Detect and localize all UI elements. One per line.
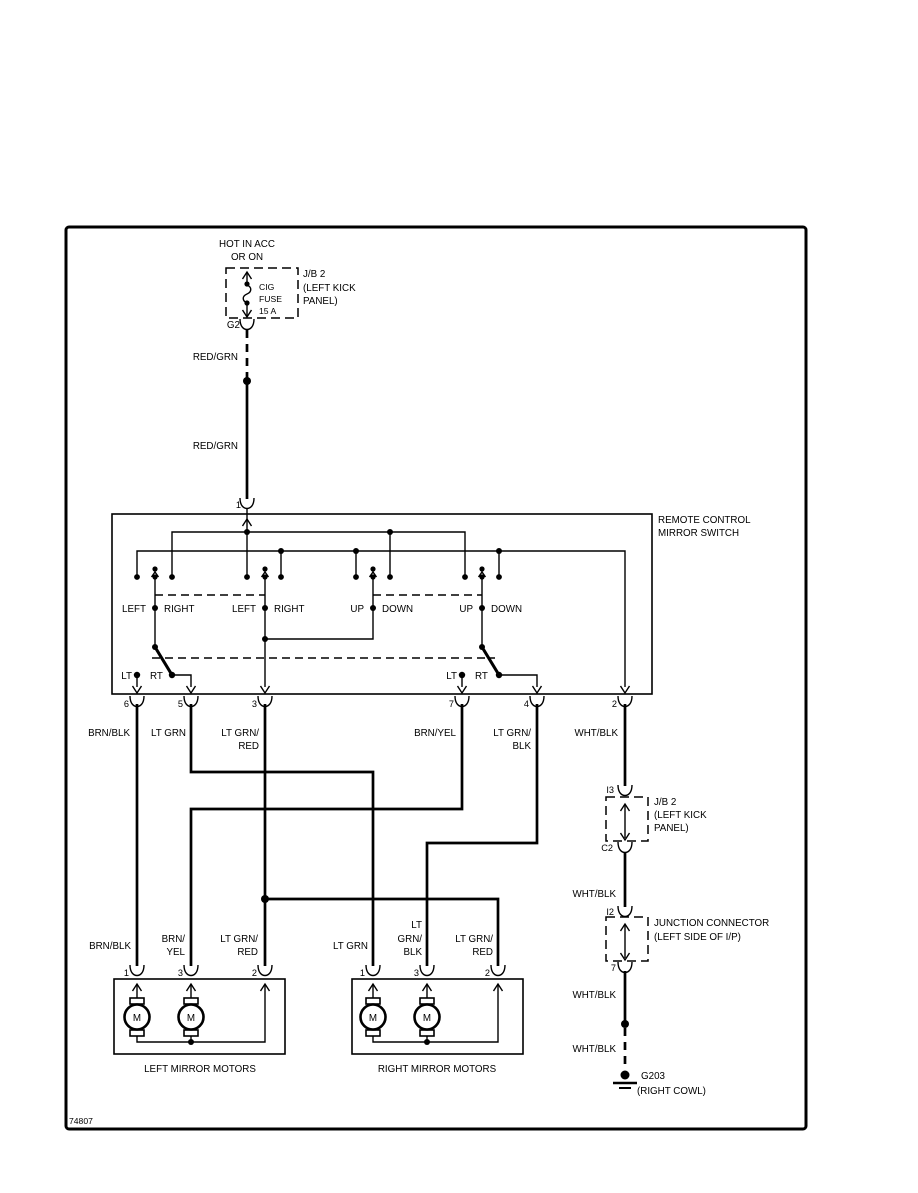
wiring-diagram-canvas: 74807 HOT IN ACC OR ON CIG FUSE 15 A J/B… (0, 0, 918, 1188)
pole-wiper (152, 566, 486, 579)
connector-icon (184, 965, 198, 976)
connector-pin1-icon (240, 498, 254, 509)
fuse-name-line2: FUSE (259, 294, 282, 304)
arrow-down-icon (621, 686, 630, 693)
junction-pin7-number: 7 (611, 963, 616, 973)
wire-color-label: BRN/YEL (414, 728, 456, 739)
arrow-down-icon (261, 686, 270, 693)
junction-dot (188, 1039, 194, 1045)
hot-label-line2: OR ON (231, 252, 263, 263)
pole-dot (370, 605, 376, 611)
section2-right-label: RIGHT (274, 604, 304, 615)
wiring-diagram-page: 74807 HOT IN ACC OR ON CIG FUSE 15 A J/B… (0, 0, 918, 1188)
connector-icon (491, 965, 505, 976)
connector-icon (130, 965, 144, 976)
pole-dot (479, 605, 485, 611)
ground-name: G203 (641, 1071, 666, 1082)
motor-cap (184, 1030, 198, 1036)
jb2-label-line2: (LEFT KICK (654, 810, 707, 821)
motor-letter: M (187, 1013, 195, 1024)
motor-pin2-number: 2 (252, 968, 257, 978)
connector-c2-icon (618, 842, 632, 853)
pin6-number: 6 (124, 699, 129, 709)
switch-pin1-number: 1 (236, 500, 241, 510)
motor-letter: M (133, 1013, 141, 1024)
pin5-number: 5 (178, 699, 183, 709)
section4-down-label: DOWN (491, 604, 522, 615)
motor-letter: M (423, 1013, 431, 1024)
motor-cap (366, 998, 380, 1004)
ground-symbol-icon (613, 1071, 637, 1089)
connector-i3-icon (618, 785, 632, 796)
motor-cap (184, 998, 198, 1004)
arrow-down-icon (533, 686, 542, 693)
bus-junction (244, 529, 250, 535)
wire-color-label: WHT/BLK (572, 990, 616, 1001)
rt-label: RT (475, 671, 488, 682)
diagram-border (66, 227, 806, 1129)
contact-dot (134, 574, 140, 580)
wire-color-label: LT GRN/ (455, 934, 493, 945)
contact-dot (387, 574, 393, 580)
ground-path: I3 J/B 2 (LEFT KICK PANEL) C2 WHT/BLK I2… (572, 785, 769, 1097)
section2-left-label: LEFT (232, 604, 256, 615)
connector-i2-icon (618, 906, 632, 917)
pole-dot (152, 605, 158, 611)
contact-dot (462, 574, 468, 580)
hot-label-line1: HOT IN ACC (219, 239, 275, 250)
switch-lever-left: LT RT (121, 644, 191, 687)
power-feed: HOT IN ACC OR ON CIG FUSE 15 A J/B 2 (LE… (193, 239, 356, 510)
link-junction-dot (262, 636, 268, 642)
motor-cap (130, 998, 144, 1004)
right-mirror-motors: 1 3 2 M M RIGHT MIRROR MOTORS (352, 965, 523, 1075)
bus-junction (353, 548, 359, 554)
lt-label: LT (446, 671, 457, 682)
wire-color-red-grn-lower: RED/GRN (193, 441, 238, 452)
arrow-down-icon (458, 686, 467, 693)
wire-color-label: YEL (166, 947, 185, 958)
connector-g2-label: G2 (227, 320, 240, 331)
motor-letter: M (369, 1013, 377, 1024)
wire-color-label: RED (237, 947, 258, 958)
switch-title-line1: REMOTE CONTROL (658, 515, 751, 526)
harness-wires: BRN/BLK LT GRN LT GRN/ RED BRN/YEL LT GR… (88, 704, 625, 966)
pole-dot (262, 605, 268, 611)
connector-i3-label: I3 (606, 785, 614, 795)
fuse-name-line1: CIG (259, 282, 275, 292)
lt-label: LT (121, 671, 132, 682)
connector-icon (420, 965, 434, 976)
section3-up-label: UP (350, 604, 364, 615)
wire-color-label: BRN/BLK (88, 728, 130, 739)
junction-connector-label-line2: (LEFT SIDE OF I/P) (654, 932, 741, 943)
jb2-label-line2: (LEFT KICK (303, 283, 356, 294)
switch-title-line2: MIRROR SWITCH (658, 528, 739, 539)
wire-color-label: LT GRN/ (220, 934, 258, 945)
junction-connector-box (606, 917, 648, 961)
contact-dot (244, 574, 250, 580)
fuse-element-icon (243, 285, 251, 303)
contact-dot (496, 574, 502, 580)
connector-c2-label: C2 (601, 843, 613, 853)
motor-cap (130, 1030, 144, 1036)
connector-pin7-icon (618, 962, 632, 973)
wire-color-label: BRN/ (162, 934, 186, 945)
jb2-label-line3: PANEL) (303, 296, 338, 307)
splice-dot (621, 1020, 629, 1028)
motor-pin1-number: 1 (360, 968, 365, 978)
fuse-rating: 15 A (259, 306, 276, 316)
motor-common-lead (137, 984, 265, 1042)
wire-lt-grn-red-branch (265, 899, 498, 966)
left-motor-caption: LEFT MIRROR MOTORS (144, 1064, 256, 1075)
motor-pin1-number: 1 (124, 968, 129, 978)
arrow-down-icon (187, 686, 196, 693)
connector-icon (366, 965, 380, 976)
wire-color-red-grn-upper: RED/GRN (193, 352, 238, 363)
motor-cap (420, 998, 434, 1004)
bus-lower (137, 551, 625, 687)
wire-color-label: RED (472, 947, 493, 958)
junction-dot (424, 1039, 430, 1045)
motor-pin3-number: 3 (414, 968, 419, 978)
jb2-label-line1: J/B 2 (654, 797, 676, 808)
pin3-number: 3 (252, 699, 257, 709)
jb2-box (606, 797, 648, 841)
wire-color-label: RED (238, 741, 259, 752)
motor-cap (420, 1030, 434, 1036)
bus-junction (387, 529, 393, 535)
contact-dot (278, 574, 284, 580)
pin7-number: 7 (449, 699, 454, 709)
wire-color-label: BLK (403, 947, 422, 958)
wire-color-label: WHT/BLK (572, 1044, 616, 1055)
arrow-down-icon (133, 686, 142, 693)
connector-g2-icon (240, 319, 254, 330)
bus-junction (278, 548, 284, 554)
contact-dot (169, 574, 175, 580)
rt-label: RT (150, 671, 163, 682)
wire-color-label: LT (411, 920, 422, 931)
motor-cap (366, 1030, 380, 1036)
jb2-label-line1: J/B 2 (303, 269, 325, 280)
section1-right-label: RIGHT (164, 604, 194, 615)
form-number: 74807 (69, 1116, 93, 1126)
motor-pin2-number: 2 (485, 968, 490, 978)
contact-dot (353, 574, 359, 580)
wire-color-label: BLK (512, 741, 531, 752)
section4-up-label: UP (459, 604, 473, 615)
mirror-switch: REMOTE CONTROL MIRROR SWITCH (112, 508, 751, 709)
junction-connector-label-line1: JUNCTION CONNECTOR (654, 918, 769, 929)
left-mirror-motors: 1 3 2 M M LEFT MIRROR MOTORS (114, 965, 285, 1075)
section3-down-label: DOWN (382, 604, 413, 615)
connector-icon (258, 965, 272, 976)
wire-color-label: WHT/BLK (574, 728, 618, 739)
connector-i2-label: I2 (606, 907, 614, 917)
section1-left-label: LEFT (122, 604, 146, 615)
bus-junction (496, 548, 502, 554)
jb2-label-line3: PANEL) (654, 823, 689, 834)
bus-upper (172, 532, 465, 577)
wire-color-label: WHT/BLK (572, 889, 616, 900)
wire-color-label: GRN/ (398, 934, 423, 945)
wire-color-label: BRN/BLK (89, 941, 131, 952)
motor-pin3-number: 3 (178, 968, 183, 978)
pin2-number: 2 (612, 699, 617, 709)
splice-dot (261, 895, 269, 903)
ground-location: (RIGHT COWL) (637, 1086, 706, 1097)
wire-color-label: LT GRN (333, 941, 368, 952)
switch-lever-right: LT RT (446, 644, 537, 687)
pin4-number: 4 (524, 699, 529, 709)
wire-color-label: LT GRN (151, 728, 186, 739)
motor-common-lead (373, 984, 498, 1042)
wire-color-label: LT GRN/ (493, 728, 531, 739)
wire-color-label: LT GRN/ (221, 728, 259, 739)
right-motor-caption: RIGHT MIRROR MOTORS (378, 1064, 497, 1075)
wire-lt-grn (191, 704, 373, 966)
